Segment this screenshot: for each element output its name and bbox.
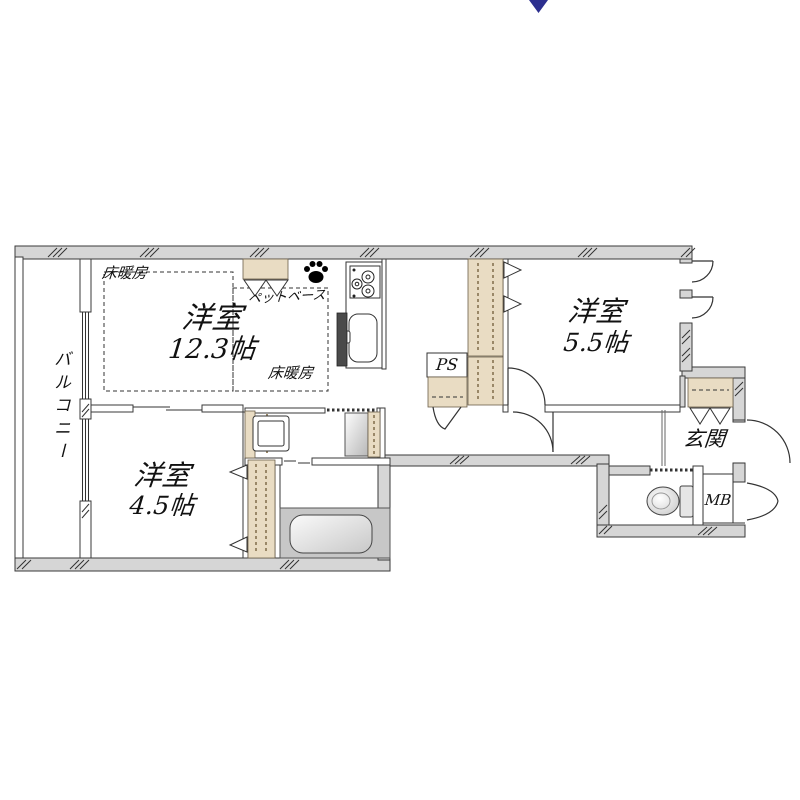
bathroom — [280, 508, 390, 558]
bathtub-icon — [290, 515, 372, 553]
entrance-label: 玄関 — [673, 429, 735, 450]
pet-base-label: ペットベース — [247, 289, 325, 306]
closet-bedroom-4-5 — [230, 460, 275, 558]
bedroom-4-5-size: 4.5帖 — [105, 493, 220, 518]
compass-arrow-icon — [529, 0, 548, 13]
washbasin-icon — [345, 413, 368, 456]
closet-bedroom-5-5 — [468, 259, 521, 405]
pipe-space-label: PS — [426, 357, 468, 373]
floor-plan-canvas: バルコニー 床暖房 床暖房 洋室 12.3帖 ペットベース 洋室 5.5帖 洋室… — [0, 0, 800, 800]
floor-heating-label-bottom: 床暖房 — [267, 366, 314, 381]
balcony-label: バルコニー — [36, 350, 68, 490]
shoe-cabinet — [688, 378, 733, 424]
meter-box-label: MB — [701, 493, 735, 508]
toilet — [647, 470, 693, 517]
living-room-name: 洋室 — [154, 304, 269, 334]
toilet-tank-icon — [680, 486, 693, 517]
kitchen-partition-wall — [337, 313, 347, 366]
bedroom-5-5-size: 5.5帖 — [539, 330, 654, 355]
living-room-size: 12.3帖 — [147, 336, 278, 363]
floor-heating-label-top: 床暖房 — [101, 266, 148, 281]
floor-plan-drawing — [0, 0, 800, 800]
bedroom-4-5-name: 洋室 — [111, 462, 214, 490]
bedroom-5-5-name: 洋室 — [545, 298, 648, 326]
front-door-arc — [747, 420, 790, 463]
kitchen-sink-icon — [349, 314, 377, 362]
kitchen-counter — [337, 262, 382, 368]
doors — [508, 261, 790, 463]
washroom-fixtures — [245, 410, 380, 458]
paw-icon — [304, 261, 328, 283]
